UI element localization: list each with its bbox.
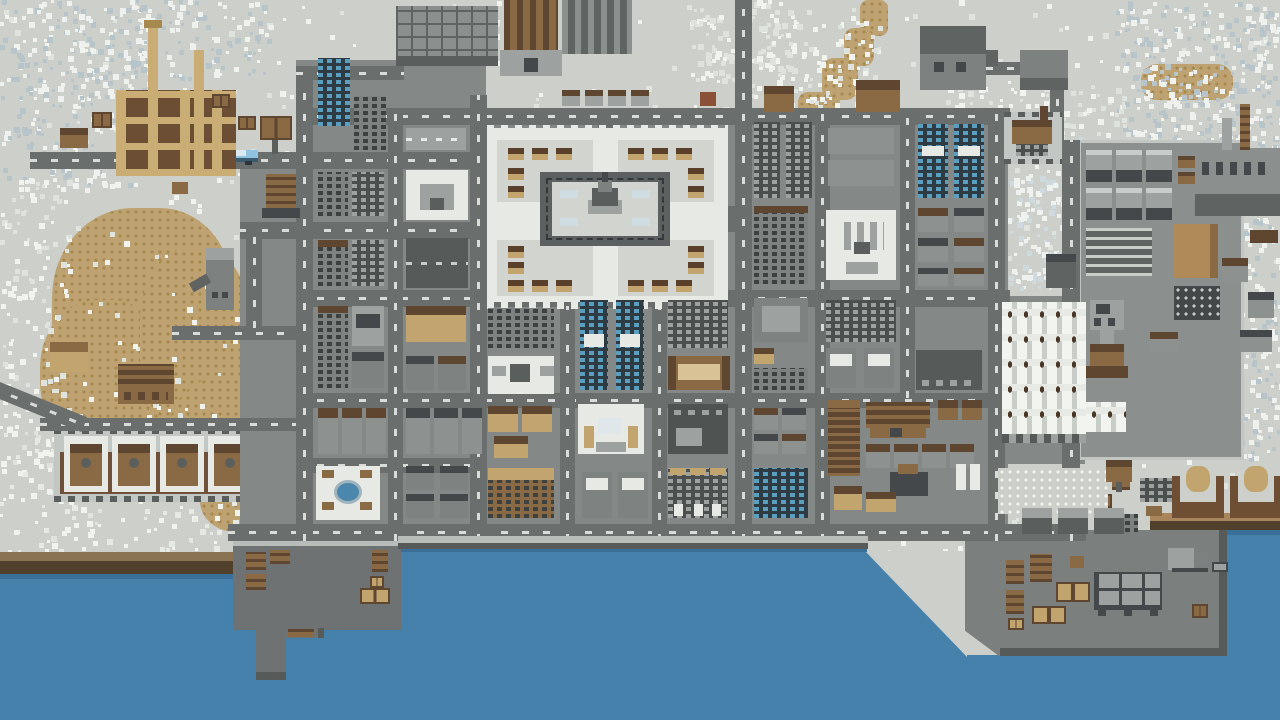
tan-storage-side [1210,224,1218,278]
lowrise-east [754,368,808,390]
barn-front-dots [124,392,168,400]
rowhouse-door [712,504,721,516]
road-sand-h [172,326,302,340]
market-stall [508,168,524,180]
office-b [352,172,384,216]
shrine-column [584,426,594,448]
crane-pole-cap [144,20,162,28]
shed-unit [922,444,946,468]
garage-roof [920,26,986,54]
market-stall [556,148,572,160]
road-v8 [900,108,915,398]
bollard-3 [177,458,187,468]
rowhouse [318,408,338,454]
kiosk-pole [1116,482,1122,492]
silo-top [206,248,234,260]
tower-cap [584,334,604,347]
rack-leg [1124,608,1132,616]
apartment-b-roof [318,240,348,247]
house [954,208,984,232]
factory-compound-chimney [1040,106,1048,122]
city-map[interactable]: Pixel-art top-down winter city map with … [0,0,1280,720]
hood-unit [938,400,958,420]
bus-depot-end [668,356,676,390]
park-bench [360,470,372,478]
crane-pole [148,24,158,174]
rowhouse-door [694,504,703,516]
apartment-c [318,306,348,388]
brown-house [866,492,896,512]
warehouse-unit [1116,188,1142,220]
truck-wheels [1172,568,1208,572]
market-stall [508,262,524,274]
water-se [965,655,1227,720]
lowrise-a [318,172,348,216]
park-bench [360,502,372,510]
factory-compound-base [1016,144,1048,156]
rowhouse [342,408,362,454]
slab-building-top [830,354,852,366]
slab-building-top [868,354,890,366]
house [782,434,806,454]
crate-tall [372,550,388,572]
house [954,268,984,286]
market-stall [652,148,668,160]
dock-shed [1094,508,1124,534]
big-warehouse-roof [866,402,930,428]
plaza-teeth-top [487,125,728,132]
plaza-bench-tr [632,190,650,198]
station-tower [504,0,558,52]
crate [1070,556,1084,568]
house [406,494,434,518]
bus-depot-inner [678,364,720,380]
water-center-bay [400,547,867,720]
fridge-unit [956,464,966,490]
supply-pad [172,182,188,194]
house [954,238,984,262]
plaza-bench-tl [560,190,578,198]
crate-big [1032,606,1066,624]
big-warehouse-door [890,428,902,437]
stall-row [562,90,580,106]
tan-apartment-roof [488,468,554,480]
roof-slab [586,478,608,490]
market-stall [688,262,704,274]
office-c [352,240,384,286]
road-top-left [296,66,404,80]
rowhouse-door [674,504,683,516]
park-bench [322,470,334,478]
tower-cap [958,146,980,156]
bollard-2 [129,458,139,468]
ore-bin-mound [1244,466,1268,492]
harvester-tracks [262,208,300,218]
rowhouse-strip [828,160,894,186]
pallet-rack-grid [1086,228,1152,276]
market-stall [652,280,668,292]
market-stall [508,148,524,160]
barrel-stack [246,552,266,570]
blue-tower [318,58,350,126]
warehouse-unit [1146,188,1172,220]
tower-cap [620,334,640,347]
bus-depot-end [722,356,730,390]
rowhouse [366,408,386,454]
house [754,408,778,430]
crate-big [360,588,390,604]
factory-east-windows [1202,162,1268,175]
chimney-ladder [1240,104,1250,150]
platform-se-edge [1000,648,1227,656]
house [918,268,948,286]
shrine-altar [598,418,622,434]
road-sand-v [246,224,262,328]
rowhouse [462,408,482,454]
platform-se-right-edge [1219,530,1227,650]
market-stall [676,148,692,160]
rack-leg [1150,608,1158,616]
market-stall [628,148,644,160]
house [754,434,778,454]
statue-wing [492,366,506,376]
road-v1 [296,66,313,541]
market-stall [688,186,704,198]
crate [370,576,384,588]
rowhouse-strip [828,128,894,154]
snow-shed [1046,254,1076,288]
crate [1008,618,1024,630]
park-bench [322,502,334,510]
shore-right-dark [1150,521,1280,530]
amphora-warehouse-ext [1086,402,1126,432]
hood-unit [962,400,982,420]
yard-shed [676,428,702,446]
shed-unit [866,444,890,468]
road-v3 [470,95,487,541]
office-d [668,300,728,348]
quay-center-dark [398,543,868,549]
truck-cab [1194,552,1208,566]
market-stall [508,186,524,198]
garage-arm [986,50,998,66]
harvester [266,174,296,212]
house [352,352,384,388]
blue-tower [954,124,984,198]
yard-dash [674,410,722,415]
ore-bin-mound [1186,466,1210,492]
warehouse-unit [1086,188,1112,220]
civic-hall-door [430,198,444,210]
warehouse-unit [1116,150,1142,182]
water-right-edge [1225,530,1280,720]
warehouse-unit [1146,150,1172,182]
garage-window [956,62,966,72]
red-kiosk [700,92,716,106]
house [406,356,434,390]
dock-teeth-bottom [54,496,266,502]
market-stall [628,280,644,292]
barn-roof [118,364,174,388]
pier-leg-end [256,672,286,680]
house [438,356,466,390]
snow-patch [998,468,1108,514]
rowhouse [434,408,458,454]
road-v6 [735,0,752,541]
roof-slab [622,478,644,490]
market-stall [556,280,572,292]
road-v5 [652,306,667,541]
pier-bench [288,629,314,637]
tower-east [786,122,812,198]
crate [1192,604,1208,618]
market-stall [508,280,524,292]
road-v4 [560,306,575,541]
dock-shed [1058,508,1088,534]
dock-shed [1022,508,1052,534]
bollard-4 [225,458,235,468]
car-wheel [245,161,252,165]
barrel-stack [1006,590,1024,614]
gallery [826,300,896,342]
kiosk [754,348,774,364]
amphora-warehouse-base [1002,434,1086,443]
parking-lot [406,238,468,288]
brown-tower [828,406,860,476]
dark-hall [562,0,632,54]
pier-arm-end [318,628,324,638]
house [782,408,806,430]
monument-tip [602,172,608,182]
house [406,466,434,490]
market-stall [676,280,692,292]
farmhouse [50,342,88,372]
brown-house [488,406,518,432]
warehouse-unit [1086,150,1112,182]
console-buttons [1094,318,1120,326]
road-left-a [30,152,486,169]
waffle-pad [1174,286,1220,320]
billboard [260,116,292,140]
kiosk [1106,460,1132,482]
market-stall [532,148,548,160]
house [440,494,468,518]
plaza-bench-br [632,218,650,226]
garage-2-base [1020,78,1068,90]
supply-pad [238,116,256,130]
house [440,466,468,490]
house [918,238,948,262]
supply-pad [212,94,230,108]
barrel-stack [246,574,266,590]
brown-bar [1250,230,1278,243]
blue-tower [918,124,948,198]
factory-compound-teeth [1004,112,1062,117]
theater-door [854,242,870,254]
slab-lot-a [406,128,466,150]
plaza-bench-bl [560,218,578,226]
office-row [488,308,554,348]
statue-wing [540,366,554,376]
rack-leg [1098,608,1106,616]
chimney [1222,118,1232,150]
market-stall [688,168,704,180]
press-machine-top [898,464,918,474]
factory-compound-building [1012,120,1052,144]
office-a [354,96,386,150]
tower-cap [922,146,944,156]
bus-shelter [60,128,88,148]
pond [334,480,362,504]
apartments-east-roof [754,206,808,213]
market-stall [508,246,524,258]
shrine-column [628,426,638,448]
crane-pole [194,50,204,176]
mini-trailer [1212,562,1228,572]
crate-tall [1030,554,1052,582]
silo-window [212,292,218,298]
roadside-shed-b [856,80,900,112]
dark-rowhouse-roof [670,468,686,475]
roadside-shed-a [764,86,794,112]
road-left-b [240,222,486,239]
rowhouse [406,408,430,454]
supply-pad [92,112,112,128]
billboard-pole [272,140,278,154]
barrel-stack [270,550,290,564]
dark-pad-dash [922,380,976,386]
shed [1150,332,1178,352]
yard-machine [356,314,380,328]
small-statue [510,364,530,382]
factory-compound-teeth [1004,159,1062,164]
tan-warehouse [406,306,466,342]
amphora-warehouse [1002,302,1086,434]
dark-rowhouse-roof [710,468,726,475]
apartments-east [754,206,808,284]
brown-house [494,436,528,458]
factory-east-lower [1195,194,1280,216]
bollard-1 [81,458,91,468]
silo-window [222,292,228,298]
tower-east [754,122,780,198]
fridge-unit [970,464,980,490]
truck-trailer [1168,548,1194,570]
stall-row [631,90,649,106]
brown-house [834,486,862,510]
shrine-steps [596,442,626,452]
water-left [0,574,233,720]
water-edge-left [0,574,233,579]
blue-lowrise [754,468,808,518]
market-stall [688,246,704,258]
brown-tower-cap [828,400,860,408]
house [1248,292,1274,318]
road-v2 [388,108,403,541]
shed [1240,330,1272,352]
crate [1146,506,1162,516]
garage-window [934,62,944,72]
machine [1140,478,1174,502]
market-stall [532,280,548,292]
house [1222,258,1248,282]
barrel-stack [1006,560,1024,584]
console-screen [1096,304,1110,314]
water-edge-right [1225,530,1280,535]
apartment-c-roof [318,306,348,313]
brown-house [522,406,552,432]
train-shed-base [396,56,498,66]
stall-row [608,90,626,106]
container-rack [1094,572,1162,610]
dark-rowhouse-roof [690,468,706,475]
theater-steps [846,262,878,274]
stall-row [585,90,603,106]
pier-leg [256,630,286,676]
house [918,208,948,232]
press-machine-base [1086,366,1128,378]
stair-building-inner [762,306,800,332]
crate-big [1056,582,1090,602]
station-door [524,58,538,72]
